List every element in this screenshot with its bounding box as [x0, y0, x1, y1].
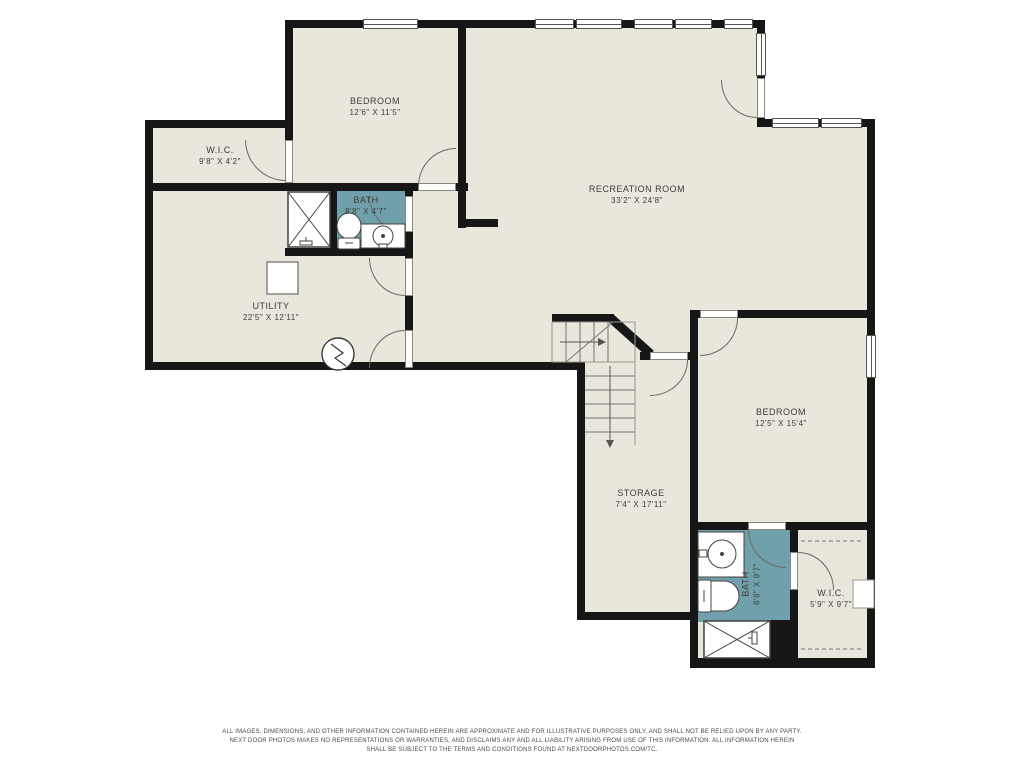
- toilet-icon: [337, 213, 361, 249]
- room-name: BATH: [740, 563, 752, 605]
- room-label-utility: UTILITY 22'5" X 12'11": [243, 300, 299, 323]
- room-dims: 12'5" X 15'4": [755, 418, 807, 429]
- room-label-wic-1: W.I.C. 9'8" X 4'2": [199, 144, 241, 167]
- disclaimer: ALL IMAGES, DIMENSIONS, AND OTHER INFORM…: [0, 728, 1024, 755]
- water-heater-icon: [267, 262, 298, 294]
- room-dims: 7'4" X 17'11": [615, 499, 666, 510]
- room-dims: 33'2" X 24'8": [589, 195, 685, 206]
- electrical-icon: [322, 338, 354, 370]
- room-name: BATH: [345, 194, 387, 206]
- room-dims: 5'9" X 9'7": [810, 599, 852, 610]
- room-name: W.I.C.: [810, 587, 852, 599]
- toilet-icon: [698, 580, 739, 612]
- fixture-layer: [0, 0, 1024, 768]
- disclaimer-line: SHALL BE SUBJECT TO THE TERMS AND CONDIT…: [0, 746, 1024, 755]
- room-dims: 9'8" X 4'2": [199, 156, 241, 167]
- sink-icon: [698, 532, 744, 577]
- shower-icon: [288, 192, 330, 247]
- room-label-wic-2: W.I.C. 5'9" X 9'7": [810, 587, 852, 610]
- room-name: UTILITY: [243, 300, 299, 312]
- sink-icon: [361, 224, 405, 248]
- room-label-bath-2: BATH 6'8" X 9'7": [740, 563, 763, 605]
- floor-plan: BEDROOM 12'6" X 11'5" W.I.C. 9'8" X 4'2"…: [0, 0, 1024, 768]
- room-name: W.I.C.: [199, 144, 241, 156]
- room-name: BEDROOM: [755, 406, 807, 418]
- room-name: STORAGE: [615, 487, 666, 499]
- room-label-bedroom-1: BEDROOM 12'6" X 11'5": [349, 95, 400, 118]
- room-dims: 8'8" X 4'7": [345, 206, 387, 217]
- room-name: BEDROOM: [349, 95, 400, 107]
- room-label-storage: STORAGE 7'4" X 17'11": [615, 487, 666, 510]
- stairs-icon: [552, 322, 635, 448]
- room-label-bedroom-2: BEDROOM 12'5" X 15'4": [755, 406, 807, 429]
- room-dims: 6'8" X 9'7": [752, 563, 763, 605]
- room-dims: 22'5" X 12'11": [243, 312, 299, 323]
- room-dims: 12'6" X 11'5": [349, 107, 400, 118]
- closet-shelf-icon: [853, 580, 874, 608]
- disclaimer-line: ALL IMAGES, DIMENSIONS, AND OTHER INFORM…: [0, 728, 1024, 737]
- room-label-recreation-room: RECREATION ROOM 33'2" X 24'8": [589, 183, 685, 206]
- shower-icon: [704, 621, 770, 658]
- room-name: RECREATION ROOM: [589, 183, 685, 195]
- disclaimer-line: NEXT DOOR PHOTOS MAKES NO REPRESENTATION…: [0, 737, 1024, 746]
- room-label-bath-1: BATH 8'8" X 4'7": [345, 194, 387, 217]
